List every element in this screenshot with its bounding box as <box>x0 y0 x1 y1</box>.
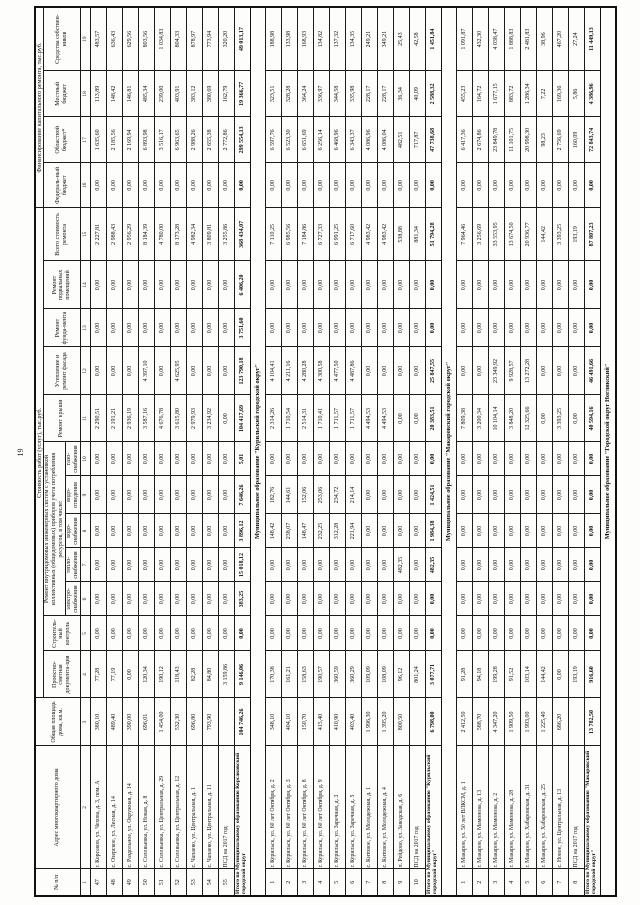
row-value: 6 597,76 <box>265 117 281 163</box>
section-total-label: Итого по Муниципальному образованию Корс… <box>234 746 250 896</box>
section-total-value: 46 491,66 <box>584 347 600 395</box>
row-value: 0,00 <box>106 347 122 395</box>
col-number: 13 <box>80 309 90 347</box>
row-value: 1 225,40 <box>536 698 552 746</box>
row-value: 0,00 <box>568 442 584 476</box>
row-value: 1 286,34 <box>520 71 536 117</box>
row-value: 390,00 <box>122 698 138 746</box>
row-value: 0,00 <box>265 582 281 616</box>
section-total-value: 0,00 <box>584 616 600 651</box>
row-value: 0,00 <box>186 548 202 582</box>
row-value: 0,00 <box>122 163 138 208</box>
row-value: 0,00 <box>504 442 520 476</box>
table-row: 49с. Раздольное, ул. Окружная, д. 14390,… <box>122 7 138 896</box>
row-value: 0,00 <box>202 261 218 309</box>
section-total-row: Итого по Муниципальному образованию "Мак… <box>584 7 600 896</box>
section-total-value: 383,25 <box>234 582 250 616</box>
row-value: 0,00 <box>138 309 154 347</box>
row-value: 0,00 <box>313 442 329 476</box>
row-value: 162,79 <box>218 71 234 117</box>
row-value: 0,00 <box>90 261 106 309</box>
row-value: 1 993,00 <box>520 698 536 746</box>
row-value: 0,00 <box>106 548 122 582</box>
section-total-value: 123 790,18 <box>234 347 250 395</box>
row-value: 0,00 <box>472 442 488 476</box>
row-value: 0,00 <box>456 261 472 309</box>
row-value: 415,40 <box>313 698 329 746</box>
row-value: 0,00 <box>536 261 552 309</box>
row-value: 0,00 <box>202 548 218 582</box>
row-value: 0,00 <box>488 442 504 476</box>
row-value: 98,23 <box>536 117 552 163</box>
row-number: 10 <box>409 869 425 896</box>
row-value: 0,00 <box>106 261 122 309</box>
table-row: 2г. Макаров, ул. Мамонова, д. 13588,7094… <box>472 7 488 896</box>
section-total-value: 6 798,00 <box>425 698 441 746</box>
row-value: 0,00 <box>122 476 138 514</box>
row-value: 13 272,28 <box>520 347 536 395</box>
row-value: 404,10 <box>281 698 297 746</box>
row-value <box>218 698 234 746</box>
row-value: 3 159,86 <box>218 651 234 698</box>
section-total-value: 7 646,26 <box>234 476 250 514</box>
row-value: 0,00 <box>568 548 584 582</box>
table-row: 4г. Макаров, ул. Мамонова, д. 281 909,50… <box>504 7 520 896</box>
table-header: № п/пАдрес многоквартирного домаОбщая пл… <box>35 7 90 896</box>
section-total-value: 40 594,16 <box>584 395 600 442</box>
row-value: 0,00 <box>297 442 313 476</box>
table-row: 2г. Курильск, ул. 60 лет Октября, д. 340… <box>281 7 297 896</box>
row-value: 532,30 <box>170 698 186 746</box>
row-value: 40,09 <box>409 71 425 117</box>
table-row: 3г. Макаров, ул. Мамонова, д. 24 347,201… <box>488 7 504 896</box>
row-value: 0,00 <box>329 163 345 208</box>
row-value: 360,59 <box>329 651 345 698</box>
row-value: 0,00 <box>202 442 218 476</box>
row-value: 878,97 <box>186 7 202 71</box>
row-value: 0,00 <box>472 582 488 616</box>
row-value: 42,58 <box>409 7 425 71</box>
col-number: 1 <box>80 869 90 896</box>
row-address: г. Макаров, ул. Хабаровская, д. 25 <box>536 746 552 869</box>
rotated-sheet: 19 № п/пАдрес многоквартирного домаОбщая… <box>0 0 640 905</box>
row-value: 0,00 <box>377 476 393 514</box>
row-number: 3 <box>488 869 504 896</box>
row-value: 3 516,17 <box>154 117 170 163</box>
row-value: 0,00 <box>536 395 552 442</box>
section-total-value: 0,00 <box>584 476 600 514</box>
col-number: 16 <box>80 163 90 208</box>
row-value: 0,00 <box>90 476 106 514</box>
row-value: 383,12 <box>186 71 202 117</box>
row-value: 0,00 <box>361 163 377 208</box>
col-number: 3 <box>80 698 90 746</box>
section-total-value: 2 588,32 <box>425 71 441 117</box>
row-value: 144,61 <box>281 476 297 514</box>
row-number: 6 <box>345 869 361 896</box>
row-value: 0,00 <box>361 309 377 347</box>
col-number: 9 <box>80 476 90 514</box>
row-value: 0,00 <box>186 442 202 476</box>
row-value: 0,00 <box>122 347 138 395</box>
row-value: 0,00 <box>536 442 552 476</box>
row-value: 0,00 <box>377 347 393 395</box>
row-value: 0,00 <box>122 582 138 616</box>
row-value: 0,00 <box>297 163 313 208</box>
row-value: 158,63 <box>297 651 313 698</box>
row-value: 4 086,96 <box>361 117 377 163</box>
row-value: 12 325,66 <box>520 395 536 442</box>
row-value: 0,00 <box>313 582 329 616</box>
section-total-label: Итого по Муниципальному образованию "Кур… <box>425 746 441 896</box>
row-value: 0,00 <box>377 163 393 208</box>
row-value: 4 280,28 <box>297 347 313 395</box>
row-value: 0,00 <box>218 261 234 309</box>
col-header-basement: Ремонт подвальных помещений <box>44 261 80 309</box>
row-value: 0,00 <box>170 476 186 514</box>
row-value: 0,00 <box>138 442 154 476</box>
col-header-owners-funds: Средства собствен-ников <box>44 7 80 71</box>
row-value: 0,00 <box>456 514 472 548</box>
row-value: 0,00 <box>488 548 504 582</box>
row-value: 0,00 <box>281 442 297 476</box>
row-value: 0,00 <box>456 616 472 651</box>
row-value: 0,00 <box>520 442 536 476</box>
section-total-value: 6 406,20 <box>234 261 250 309</box>
row-value: 10 104,14 <box>488 395 504 442</box>
row-value: 148,47 <box>297 514 313 548</box>
row-value: 0,00 <box>138 476 154 514</box>
col-number: 11 <box>80 395 90 442</box>
row-value: 2 956,29 <box>122 208 138 261</box>
row-address: ПСД на 2017 год <box>568 746 584 869</box>
row-value: 0,00 <box>138 163 154 208</box>
section-total-value: 0,00 <box>584 582 600 616</box>
row-value: 164,72 <box>472 71 488 117</box>
section-total-row: Итого по Муниципальному образованию Корс… <box>234 7 250 896</box>
row-value: 4 477,50 <box>329 347 345 395</box>
table-row: 10ПСД на 2017 год801,240,000,000,000,000… <box>409 7 425 896</box>
row-value: 0,00 <box>568 616 584 651</box>
row-value: 0,00 <box>202 309 218 347</box>
row-value: 636,43 <box>106 7 122 71</box>
row-value: 0,00 <box>202 616 218 651</box>
row-value: 0,00 <box>90 582 106 616</box>
row-value: 773,94 <box>202 7 218 71</box>
row-value: 0,00 <box>377 514 393 548</box>
row-value: 0,00 <box>504 548 520 582</box>
row-value: 27,24 <box>568 7 584 71</box>
row-value: 0,00 <box>409 514 425 548</box>
row-value: 3 200,34 <box>472 395 488 442</box>
row-value: 0,00 <box>472 476 488 514</box>
row-value: 0,00 <box>393 309 409 347</box>
section-total-value: 19 366,77 <box>234 71 250 117</box>
row-value: 0,00 <box>90 347 106 395</box>
row-value: 0,00 <box>568 395 584 442</box>
col-header-local-budget: Местный бюджет <box>44 71 80 117</box>
row-address: с. Раздольное, ул. Окружная, д. 14 <box>122 746 138 869</box>
row-value: 0,00 <box>170 309 186 347</box>
row-value: 0,00 <box>297 548 313 582</box>
row-value: 0,00 <box>361 514 377 548</box>
row-value: 489,40 <box>106 698 122 746</box>
row-value: 0,00 <box>345 163 361 208</box>
row-value: 0,00 <box>504 616 520 651</box>
row-value: 0,00 <box>409 395 425 442</box>
row-number: 54 <box>202 869 218 896</box>
table-row: 1г. Макаров, ул. 50 лет ВЛКСМ, д. 12 412… <box>456 7 472 896</box>
row-value: 0,00 <box>377 309 393 347</box>
row-value: 6 727,33 <box>313 208 329 261</box>
row-value: 0,00 <box>504 163 520 208</box>
row-value: 320,20 <box>218 7 234 71</box>
row-value: 0,00 <box>265 548 281 582</box>
row-value: 0,00 <box>202 514 218 548</box>
row-value: 169,36 <box>552 71 568 117</box>
table-row: 3г. Курильск, ул. 60 лет Октября, д. 815… <box>297 7 313 896</box>
row-value: 118,43 <box>170 651 186 698</box>
section-total-value: 25 847,55 <box>425 347 441 395</box>
row-value: 2 514,31 <box>297 395 313 442</box>
row-value: 0,00 <box>265 616 281 651</box>
section-total-value: 0,00 <box>425 582 441 616</box>
col-header-num: № п/п <box>35 869 80 896</box>
row-value: 0,00 <box>218 582 234 616</box>
row-value: 0,00 <box>202 163 218 208</box>
row-value: 148,42 <box>265 514 281 548</box>
section-total-value: 0,00 <box>584 548 600 582</box>
row-value: 0,00 <box>345 548 361 582</box>
table-row: 55ПСД на 2017 год3 159,860,000,000,000,0… <box>218 7 234 896</box>
page-number: 19 <box>16 0 25 905</box>
row-value: 0,00 <box>409 309 425 347</box>
row-value: 0,00 <box>218 548 234 582</box>
row-value: 150,70 <box>297 698 313 746</box>
section-total-value: 0,00 <box>425 261 441 309</box>
row-value: 0,00 <box>122 651 138 698</box>
section-total-value: 104 417,69 <box>234 395 250 442</box>
row-value: 4 983,42 <box>377 208 393 261</box>
row-value: 881,34 <box>409 208 425 261</box>
row-value: 160,09 <box>568 117 584 163</box>
row-value: 0,00 <box>488 163 504 208</box>
row-value: 0,00 <box>568 514 584 548</box>
row-value: 0,00 <box>504 476 520 514</box>
section-total-value: 4 386,96 <box>584 71 600 117</box>
table-row: 1г. Курильск, ул. 60 лет Октября, д. 234… <box>265 7 281 896</box>
row-number: 55 <box>218 869 234 896</box>
row-value: 323,51 <box>265 71 281 117</box>
row-value: 82,28 <box>186 651 202 698</box>
row-value: 0,00 <box>536 616 552 651</box>
row-value: 6 963,65 <box>170 117 186 163</box>
table-row: 47г. Корсаков, ул. Чехова, д. 3, пом. А3… <box>90 7 106 896</box>
row-value: 2 772,86 <box>218 117 234 163</box>
row-value: 0,00 <box>106 442 122 476</box>
row-value: 0,00 <box>552 514 568 548</box>
col-header-foundation: Ремонт фунда-мента <box>44 309 80 347</box>
row-value: 0,00 <box>313 548 329 582</box>
row-value: 0,00 <box>170 514 186 548</box>
row-value: 0,00 <box>393 514 409 548</box>
row-value: 0,00 <box>361 442 377 476</box>
row-value: 0,00 <box>154 548 170 582</box>
row-value: 1 091,87 <box>456 7 472 71</box>
row-value: 0,00 <box>90 616 106 651</box>
row-value: 0,00 <box>154 309 170 347</box>
row-value: 0,00 <box>409 261 425 309</box>
row-value: 0,00 <box>138 514 154 548</box>
row-value: 161,21 <box>281 651 297 698</box>
section-total-label: Итого по Муниципальному образованию "Мак… <box>584 746 600 896</box>
row-address: г. Курильск, ул. 60 лет Октября, д. 2 <box>265 746 281 869</box>
row-value: 33 553,95 <box>488 208 504 261</box>
row-value: 4 104,41 <box>265 347 281 395</box>
row-value: 91,52 <box>504 651 520 698</box>
row-value: 4 347,20 <box>488 698 504 746</box>
col-header-regional-budget: Областной бюджет* <box>44 117 80 163</box>
col-number: 6 <box>80 582 90 616</box>
row-value: 9 928,57 <box>504 347 520 395</box>
row-value: 103,14 <box>520 651 536 698</box>
section-total-value: 0,00 <box>584 261 600 309</box>
section-total-value: 47 738,68 <box>425 117 441 163</box>
section-total-value: 51 794,28 <box>425 208 441 261</box>
row-value: 6 468,96 <box>329 117 345 163</box>
row-value: 0,00 <box>297 261 313 309</box>
section-total-value: 104 746,26 <box>234 698 250 746</box>
section-total-value: 368 434,07 <box>234 208 250 261</box>
row-number: 1 <box>265 869 281 896</box>
col-header-design-docs: Проектно-сметная документа-ция <box>44 651 80 698</box>
row-value: 0,00 <box>552 163 568 208</box>
row-number: 4 <box>313 869 329 896</box>
row-value: 0,00 <box>488 582 504 616</box>
col-number: 10 <box>80 442 90 476</box>
row-value: 0,00 <box>472 347 488 395</box>
row-value: 91,28 <box>456 651 472 698</box>
row-value: 0,00 <box>536 309 552 347</box>
row-value: 0,00 <box>409 163 425 208</box>
row-value: 2 756,69 <box>552 117 568 163</box>
row-value: 0,00 <box>154 163 170 208</box>
row-value: 0,00 <box>186 514 202 548</box>
row-value: 0,00 <box>202 347 218 395</box>
row-value: 0,00 <box>138 548 154 582</box>
row-number: 1 <box>456 869 472 896</box>
row-value: 0,00 <box>154 261 170 309</box>
row-value: 0,00 <box>520 261 536 309</box>
row-value <box>568 698 584 746</box>
table-body: 47г. Корсаков, ул. Чехова, д. 3, пом. А3… <box>90 7 616 896</box>
row-value: 2 185,56 <box>106 117 122 163</box>
row-value: 0,00 <box>552 651 568 698</box>
row-value: 0,00 <box>265 442 281 476</box>
row-value: 0,00 <box>472 616 488 651</box>
row-value: 6 991,25 <box>329 208 345 261</box>
row-value: 0,00 <box>345 442 361 476</box>
row-value: 335,98 <box>345 71 361 117</box>
row-value: 0,00 <box>377 261 393 309</box>
section-total-value: 0,00 <box>425 309 441 347</box>
row-value: 1 454,00 <box>154 698 170 746</box>
row-address: с. Новое, ул. Центральная, д. 13 <box>552 746 568 869</box>
row-value: 0,00 <box>568 347 584 395</box>
table-row: 7с. Новое, ул. Центральная, д. 13686,200… <box>552 7 568 896</box>
row-address: г. Курильск, ул. Заречная, д. 3 <box>329 746 345 869</box>
row-value: 0,00 <box>536 514 552 548</box>
table-row: 6г. Курильск, ул. Заречная, д. 5403,4036… <box>345 7 361 896</box>
row-value: 2 674,86 <box>472 117 488 163</box>
row-value: 8 173,28 <box>170 208 186 261</box>
row-value: 1 635,60 <box>90 117 106 163</box>
row-value: 0,00 <box>536 476 552 514</box>
table-row: 52с. Соловьевка, ул. Центральная, д. 125… <box>170 7 186 896</box>
row-value: 485,34 <box>138 71 154 117</box>
section-total-value: 0,00 <box>584 163 600 208</box>
row-value: 77,28 <box>90 651 106 698</box>
row-value: 38,96 <box>536 7 552 71</box>
row-value: 0,00 <box>329 616 345 651</box>
row-value: 0,00 <box>138 261 154 309</box>
section-total-value: 1 424,51 <box>425 476 441 514</box>
row-value: 2 936,19 <box>122 395 138 442</box>
row-value: 0,00 <box>504 261 520 309</box>
row-value: 0,00 <box>377 442 393 476</box>
row-value: 0,00 <box>281 309 297 347</box>
row-value: 0,00 <box>345 616 361 651</box>
col-header-water-supply: водо-снабжения <box>65 514 80 548</box>
row-value: 20 936,77 <box>520 208 536 261</box>
row-value: 190,57 <box>313 651 329 698</box>
section-total-value: 3 896,12 <box>234 514 250 548</box>
section-total-value: 72 843,74 <box>584 117 600 163</box>
row-value: 13 674,50 <box>504 208 520 261</box>
row-value: 312,28 <box>329 514 345 548</box>
row-value: 0,00 <box>568 261 584 309</box>
section-total-value: 916,60 <box>584 651 600 698</box>
row-value: 239,00 <box>154 71 170 117</box>
row-value: 717,87 <box>409 117 425 163</box>
row-value: 0,00 <box>409 548 425 582</box>
table-row: 8с. Китовое, ул. Молодежная, д. 41 395,2… <box>377 7 393 896</box>
row-value: 8 184,39 <box>138 208 154 261</box>
section-title: Муниципальное образование "Макаровский г… <box>441 7 456 896</box>
section-total-value: 9 146,06 <box>234 651 250 698</box>
row-value: 4 211,16 <box>281 347 297 395</box>
row-value: 4 397,10 <box>138 347 154 395</box>
row-value: 94,18 <box>472 651 488 698</box>
row-value: 0,00 <box>345 261 361 309</box>
row-value: 1 711,57 <box>329 395 345 442</box>
row-value: 0,00 <box>90 514 106 548</box>
col-header-federal-budget: Федераль-ный бюджет <box>44 163 80 208</box>
row-value: 0,00 <box>472 163 488 208</box>
row-value: 0,00 <box>106 514 122 548</box>
row-value: 0,00 <box>281 163 297 208</box>
row-value: 109,09 <box>361 651 377 698</box>
row-number: 53 <box>186 869 202 896</box>
row-value: 253,06 <box>313 476 329 514</box>
section-total-value: 0,00 <box>584 442 600 476</box>
row-value: 0,00 <box>329 548 345 582</box>
row-number: 5 <box>329 869 345 896</box>
col-header-heating: тепло-снабжения <box>65 548 80 582</box>
row-value: 0,00 <box>106 582 122 616</box>
row-value: 2 191,21 <box>106 395 122 442</box>
row-value: 0,00 <box>520 476 536 514</box>
